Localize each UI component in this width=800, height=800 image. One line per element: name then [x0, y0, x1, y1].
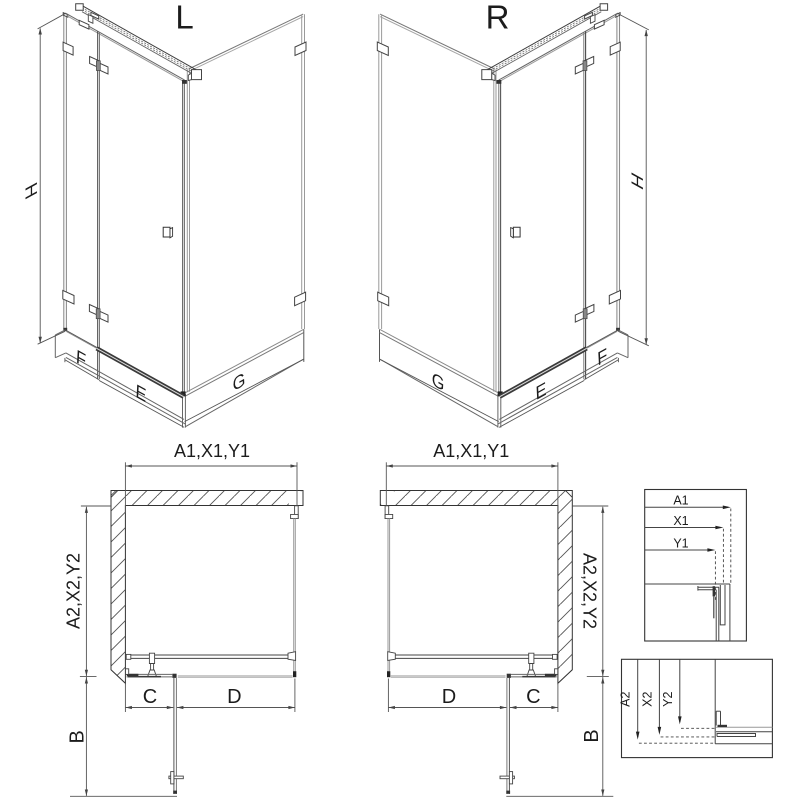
svg-text:D: D [442, 686, 456, 708]
svg-text:C: C [526, 686, 540, 708]
svg-text:H: H [627, 169, 645, 193]
svg-text:B: B [67, 730, 89, 743]
svg-text:H: H [21, 179, 39, 203]
svg-text:B: B [581, 729, 603, 742]
svg-text:A1: A1 [673, 494, 688, 508]
svg-text:G: G [431, 368, 445, 396]
svg-text:A2,X2,Y2: A2,X2,Y2 [64, 553, 84, 629]
svg-text:Y1: Y1 [673, 537, 688, 551]
svg-text:Y2: Y2 [661, 692, 675, 707]
svg-text:A1,X1,Y1: A1,X1,Y1 [433, 441, 509, 461]
svg-text:C: C [143, 686, 157, 708]
svg-text:A2,X2,Y2: A2,X2,Y2 [580, 553, 600, 629]
svg-text:F: F [597, 343, 608, 369]
svg-text:G: G [232, 368, 246, 396]
svg-text:X1: X1 [673, 514, 688, 528]
svg-text:A1,X1,Y1: A1,X1,Y1 [174, 441, 250, 461]
svg-text:D: D [227, 686, 241, 708]
svg-text:E: E [535, 377, 547, 404]
svg-text:L: L [175, 0, 193, 36]
svg-text:R: R [486, 0, 510, 36]
svg-text:X2: X2 [641, 692, 655, 707]
svg-text:A2: A2 [619, 692, 633, 707]
svg-text:E: E [135, 380, 147, 407]
